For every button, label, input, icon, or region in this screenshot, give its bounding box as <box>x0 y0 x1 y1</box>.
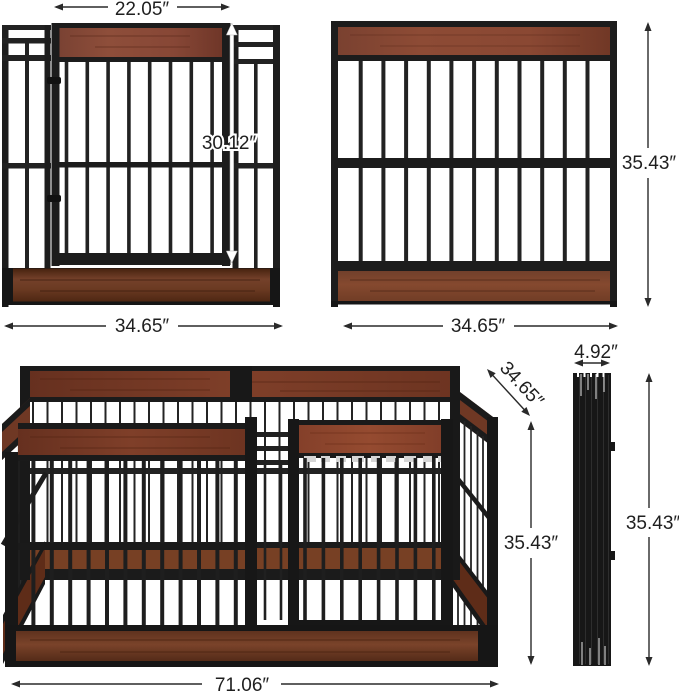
svg-text:35.43″: 35.43″ <box>504 533 559 554</box>
svg-text:34.65″: 34.65″ <box>115 316 170 337</box>
svg-text:35.43″: 35.43″ <box>622 153 677 174</box>
svg-text:22.05″: 22.05″ <box>115 0 170 20</box>
svg-text:34.65″: 34.65″ <box>451 316 506 337</box>
svg-text:30.12″: 30.12″ <box>202 133 257 154</box>
svg-text:71.06″: 71.06″ <box>215 675 270 693</box>
svg-text:34.65″: 34.65″ <box>495 358 548 412</box>
svg-text:35.43″: 35.43″ <box>626 513 679 534</box>
svg-text:4.92″: 4.92″ <box>574 342 618 363</box>
